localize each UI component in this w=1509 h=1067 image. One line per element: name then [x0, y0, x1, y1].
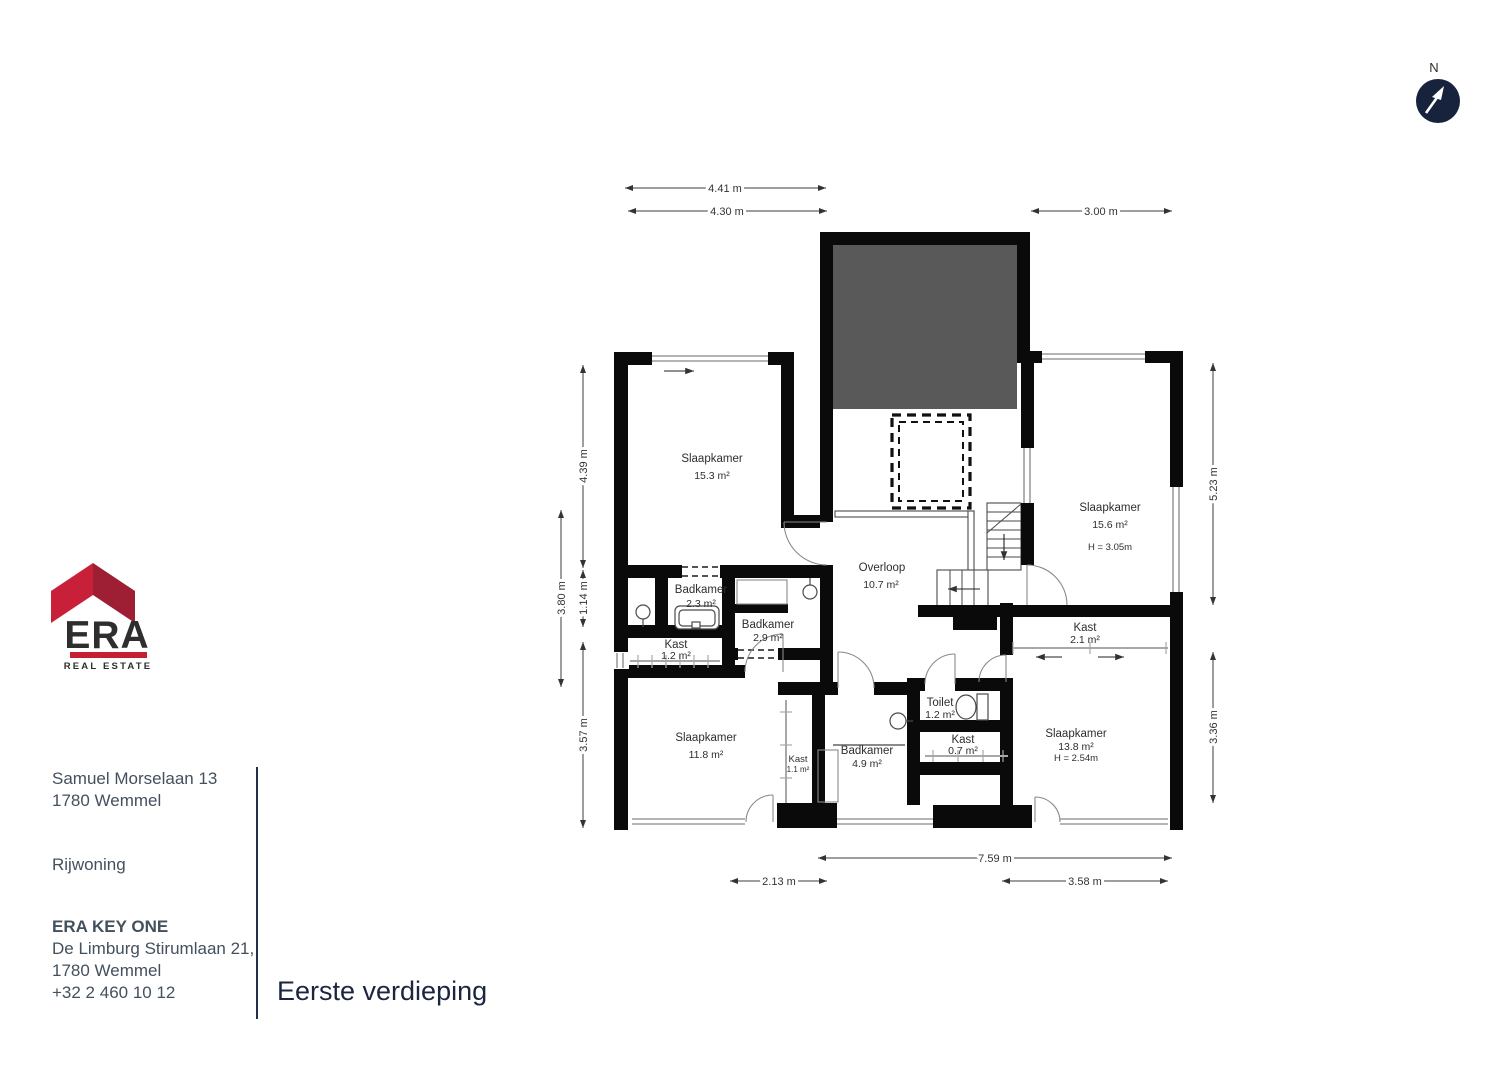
floorplan-page: Slaapkamer 15.3 m² Slaapkamer 15.6 m² H …: [0, 0, 1509, 1067]
svg-text:4.9 m²: 4.9 m²: [852, 758, 882, 770]
agency-address-line1: De Limburg Stirumlaan 21,: [52, 938, 254, 960]
svg-text:7.59 m: 7.59 m: [978, 853, 1012, 865]
skylight-dashed-rect: [892, 415, 970, 508]
divider: [256, 767, 258, 1019]
svg-text:2.9 m²: 2.9 m²: [753, 632, 783, 644]
svg-text:Slaapkamer: Slaapkamer: [1045, 728, 1107, 740]
room-label-overloop: Overloop 10.7 m²: [859, 562, 906, 591]
logo-bar: [70, 652, 147, 658]
svg-text:4.30 m: 4.30 m: [710, 206, 744, 218]
room-label-badkamer-29: Badkamer 2.9 m²: [742, 619, 795, 644]
room-label-toilet: Toilet 1.2 m²: [925, 697, 955, 721]
sink-badkamer-29: [803, 578, 817, 599]
room-label-kast-11: Kast 1.1 m²: [787, 754, 810, 774]
agency-phone: +32 2 460 10 12: [52, 982, 254, 1004]
svg-text:15.6 m²: 15.6 m²: [1092, 519, 1128, 531]
room-label-badkamer-49: Badkamer 4.9 m²: [841, 745, 894, 770]
svg-text:1.14 m: 1.14 m: [578, 581, 590, 615]
floorplan-canvas: Slaapkamer 15.3 m² Slaapkamer 15.6 m² H …: [0, 0, 1509, 1067]
svg-text:4.41 m: 4.41 m: [708, 183, 742, 195]
svg-text:3.36 m: 3.36 m: [1208, 710, 1220, 744]
era-logo: ERA REAL ESTATE: [51, 563, 152, 672]
svg-text:11.8 m²: 11.8 m²: [689, 749, 724, 761]
svg-text:Badkamer: Badkamer: [742, 619, 795, 631]
svg-text:5.23 m: 5.23 m: [1208, 467, 1220, 501]
north-label: N: [1429, 60, 1438, 75]
logo-brand: ERA: [64, 614, 149, 657]
svg-text:10.7 m²: 10.7 m²: [863, 579, 899, 591]
svg-text:0.7 m²: 0.7 m²: [948, 745, 978, 757]
svg-text:1.2 m²: 1.2 m²: [661, 650, 691, 662]
agency-name: ERA KEY ONE: [52, 916, 254, 938]
svg-text:Kast: Kast: [788, 754, 807, 765]
compass: N: [1416, 60, 1460, 123]
page-title: Eerste verdieping: [277, 976, 487, 1007]
property-address-line2: 1780 Wemmel: [52, 790, 217, 812]
compass-icon: [1416, 79, 1460, 123]
svg-text:Slaapkamer: Slaapkamer: [675, 732, 737, 744]
svg-text:Kast: Kast: [1073, 622, 1097, 634]
agency-address-line2: 1780 Wemmel: [52, 960, 254, 982]
shower-badkamer-29: [737, 580, 787, 604]
svg-text:2.13 m: 2.13 m: [762, 876, 796, 888]
property-type: Rijwoning: [52, 854, 126, 876]
toilet-fixture: [956, 694, 988, 720]
svg-text:3.80 m: 3.80 m: [556, 581, 568, 615]
svg-text:Slaapkamer: Slaapkamer: [1079, 502, 1141, 514]
room-label-kast-12: Kast 1.2 m²: [661, 639, 691, 662]
void-block: [833, 245, 1017, 409]
svg-text:Slaapkamer: Slaapkamer: [681, 453, 743, 465]
svg-text:4.39 m: 4.39 m: [578, 449, 590, 483]
logo-tagline: REAL ESTATE: [64, 661, 153, 672]
stairs: [937, 503, 1021, 608]
svg-text:2.3 m²: 2.3 m²: [686, 598, 716, 610]
svg-text:Overloop: Overloop: [859, 562, 906, 574]
svg-text:3.00 m: 3.00 m: [1084, 206, 1118, 218]
svg-text:Toilet: Toilet: [927, 697, 955, 709]
svg-text:13.8 m²: 13.8 m²: [1058, 741, 1094, 753]
room-label-kast-21: Kast 2.1 m²: [1070, 622, 1100, 646]
sink-badkamer-23: [636, 605, 650, 627]
svg-text:2.1 m²: 2.1 m²: [1070, 634, 1100, 646]
floorplan: Slaapkamer 15.3 m² Slaapkamer 15.6 m² H …: [556, 183, 1220, 888]
property-address-line1: Samuel Morselaan 13: [52, 768, 217, 790]
svg-text:Badkamer: Badkamer: [841, 745, 894, 757]
svg-text:H = 3.05m: H = 3.05m: [1088, 542, 1132, 553]
svg-text:H = 2.54m: H = 2.54m: [1054, 753, 1098, 764]
svg-text:3.57 m: 3.57 m: [578, 718, 590, 752]
room-label-slaapkamer-ne: Slaapkamer 15.6 m² H = 3.05m: [1079, 502, 1141, 553]
svg-text:15.3 m²: 15.3 m²: [694, 470, 730, 482]
svg-text:1.1 m²: 1.1 m²: [787, 765, 810, 774]
agency-block: ERA KEY ONE De Limburg Stirumlaan 21, 17…: [52, 916, 254, 1004]
room-label-kast-07: Kast 0.7 m²: [948, 734, 978, 757]
property-address: Samuel Morselaan 13 1780 Wemmel: [52, 768, 217, 812]
room-label-slaapkamer-se: Slaapkamer 13.8 m² H = 2.54m: [1045, 728, 1107, 764]
svg-text:Badkamer: Badkamer: [675, 584, 728, 596]
room-label-slaapkamer-nw: Slaapkamer 15.3 m²: [681, 453, 743, 482]
svg-text:3.58 m: 3.58 m: [1068, 876, 1102, 888]
svg-text:1.2 m²: 1.2 m²: [925, 709, 955, 721]
room-label-slaapkamer-sw: Slaapkamer 11.8 m²: [675, 732, 737, 761]
